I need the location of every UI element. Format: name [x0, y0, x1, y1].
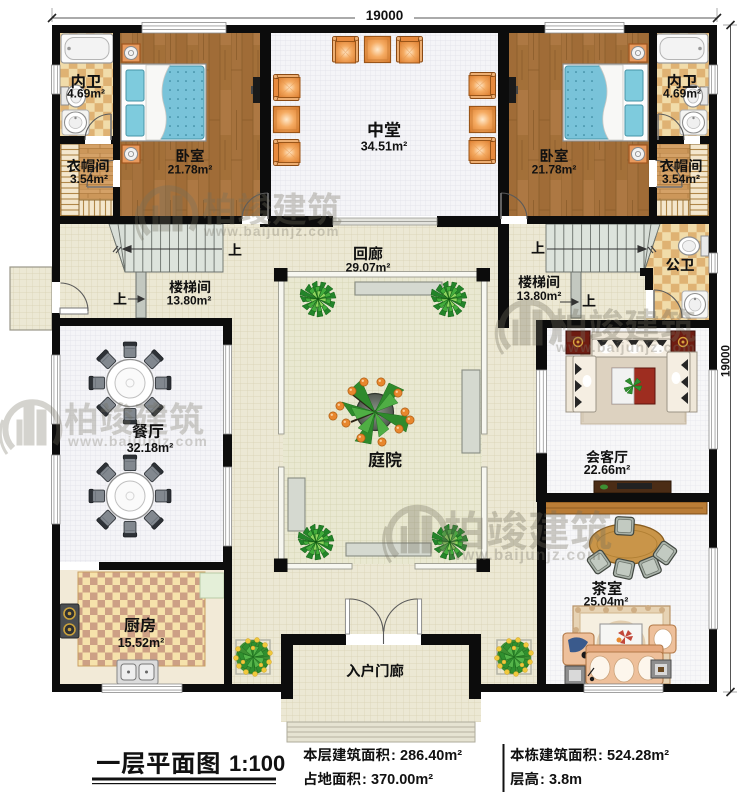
svg-text::: : — [362, 772, 367, 788]
svg-text:22.66m²: 22.66m² — [584, 463, 631, 477]
svg-text:524.28m²: 524.28m² — [607, 748, 669, 764]
svg-text:4.69m²: 4.69m² — [67, 87, 105, 101]
svg-text:13.80m²: 13.80m² — [167, 294, 212, 308]
svg-text:34.51m²: 34.51m² — [361, 140, 408, 154]
svg-text:286.40m²: 286.40m² — [400, 748, 462, 764]
svg-text:21.78m²: 21.78m² — [532, 163, 577, 177]
svg-text:15.52m²: 15.52m² — [118, 636, 165, 650]
svg-text:370.00m²: 370.00m² — [371, 772, 433, 788]
svg-text:www.baijunjz.com: www.baijunjz.com — [555, 339, 696, 355]
svg-text:4.69m²: 4.69m² — [663, 87, 701, 101]
svg-text:19000: 19000 — [721, 345, 733, 377]
svg-text:1:100: 1:100 — [229, 751, 285, 776]
svg-text:32.18m²: 32.18m² — [127, 441, 174, 455]
svg-text:3.54m²: 3.54m² — [662, 172, 700, 186]
svg-text::: : — [598, 748, 603, 764]
svg-text:www.baijunjz.com: www.baijunjz.com — [203, 224, 340, 239]
svg-text:19000: 19000 — [366, 8, 404, 23]
svg-text::: : — [391, 748, 396, 764]
svg-text:3.54m²: 3.54m² — [70, 172, 108, 186]
svg-text::: : — [540, 772, 545, 788]
svg-text:www.baijunjz.com: www.baijunjz.com — [448, 547, 602, 564]
svg-text:29.07m²: 29.07m² — [346, 261, 391, 275]
svg-text:21.78m²: 21.78m² — [168, 163, 213, 177]
svg-text:3.8m: 3.8m — [549, 772, 582, 788]
svg-text:13.80m²: 13.80m² — [517, 289, 562, 303]
svg-text:25.04m²: 25.04m² — [584, 595, 629, 609]
